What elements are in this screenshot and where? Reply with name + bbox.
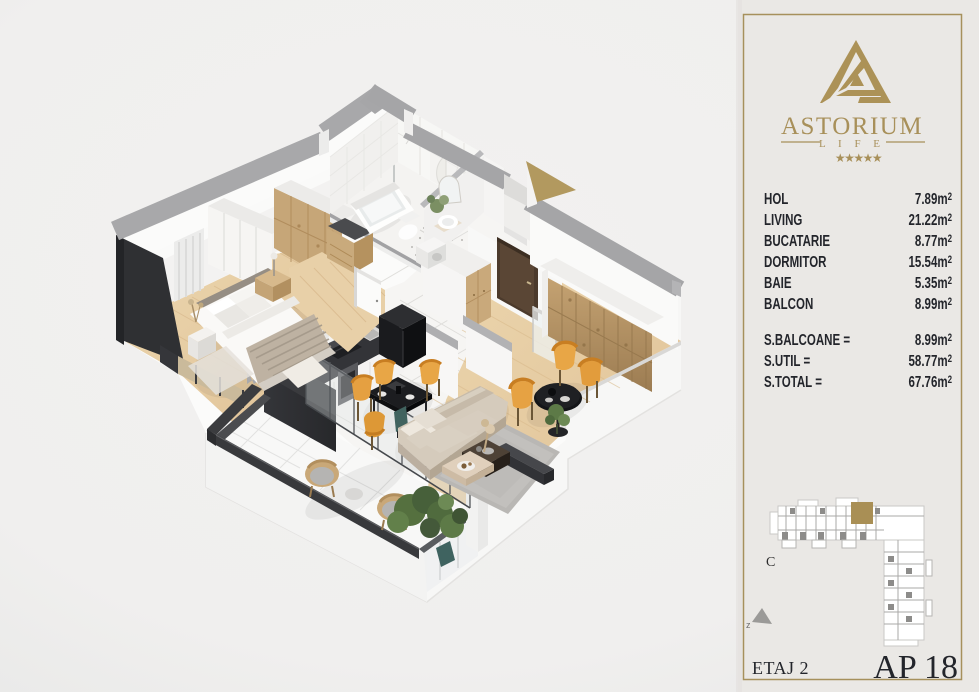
svg-text:67.76m2: 67.76m2 (909, 372, 952, 390)
svg-text:8.99m2: 8.99m2 (915, 330, 952, 348)
svg-text:21.22m2: 21.22m2 (909, 210, 952, 228)
svg-text:S.UTIL =: S.UTIL = (764, 351, 810, 369)
svg-text:DORMITOR: DORMITOR (764, 252, 826, 270)
svg-text:HOL: HOL (764, 189, 789, 207)
svg-text:8.77m2: 8.77m2 (915, 231, 952, 249)
svg-text:58.77m2: 58.77m2 (909, 351, 952, 369)
svg-text:ASTORIUM: ASTORIUM (781, 113, 923, 140)
svg-text:7.89m2: 7.89m2 (915, 189, 952, 207)
svg-text:S.TOTAL =: S.TOTAL = (764, 372, 822, 390)
svg-text:8.99m2: 8.99m2 (915, 294, 952, 312)
svg-text:LIVING: LIVING (764, 210, 802, 228)
svg-text:AP 18: AP 18 (873, 649, 958, 686)
svg-text:5.35m2: 5.35m2 (915, 273, 952, 291)
svg-text:S.BALCOANE =: S.BALCOANE = (764, 330, 850, 348)
svg-text:BAIE: BAIE (764, 273, 792, 291)
svg-text:ETAJ 2: ETAJ 2 (752, 658, 809, 678)
svg-text:BALCON: BALCON (764, 294, 813, 312)
svg-text:z: z (746, 620, 751, 630)
svg-text:C: C (766, 555, 775, 570)
svg-text:BUCATARIE: BUCATARIE (764, 231, 830, 249)
svg-text:15.54m2: 15.54m2 (909, 252, 952, 270)
svg-text:★★★★★: ★★★★★ (835, 151, 882, 165)
svg-text:L I F E: L I F E (819, 138, 885, 150)
